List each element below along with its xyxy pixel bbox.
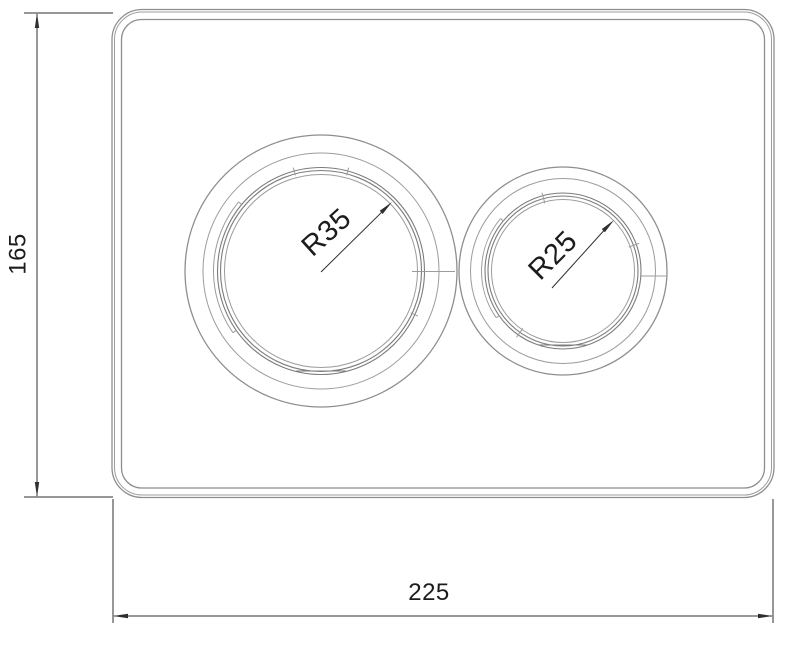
flush-plate — [112, 10, 774, 498]
height-arrowhead-bottom-icon — [35, 482, 39, 497]
drawing-canvas: R35 R25 165 225 — [0, 0, 790, 645]
large-button-tab-tick-bottom — [233, 330, 236, 332]
large-radius-arrowhead-icon — [380, 202, 392, 214]
small-button-radius-dimension: R25 — [522, 220, 614, 288]
small-button-ring-inner-circle — [488, 196, 638, 346]
large-radius-label: R35 — [296, 202, 358, 262]
plate-height-label: 165 — [5, 233, 32, 275]
large-button-radius-dimension: R35 — [296, 202, 392, 272]
width-arrowhead-left-icon — [113, 614, 128, 618]
small-button-recess-circle — [459, 167, 667, 375]
technical-drawing: R35 R25 165 225 — [0, 0, 790, 645]
large-button-ring-outer-circle — [218, 168, 425, 375]
small-flush-button — [459, 167, 667, 375]
plate-inner-edge — [122, 20, 765, 489]
plate-outer-edge — [112, 10, 774, 498]
small-button-tab-tick-bottom — [496, 316, 499, 318]
plate-width-dimension: 225 — [113, 499, 773, 623]
small-button-bezel-circle — [471, 179, 656, 364]
large-button-ring-inner-circle — [221, 171, 422, 372]
large-button-bezel-circle — [203, 153, 439, 389]
plate-bevel-edge — [115, 12, 772, 495]
plate-width-label: 225 — [408, 579, 450, 606]
small-button-ring-outer-circle — [485, 193, 641, 349]
small-radius-arrowhead-icon — [602, 220, 614, 232]
large-button-tab-tick-top — [239, 202, 242, 205]
large-button-face-circle — [225, 175, 418, 368]
plate-height-dimension: 165 — [5, 13, 114, 497]
small-radius-label: R25 — [522, 225, 583, 286]
small-button-tab-tick-top — [501, 219, 504, 221]
width-arrowhead-right-icon — [758, 614, 773, 618]
height-arrowhead-top-icon — [35, 13, 39, 28]
large-flush-button — [185, 135, 457, 407]
